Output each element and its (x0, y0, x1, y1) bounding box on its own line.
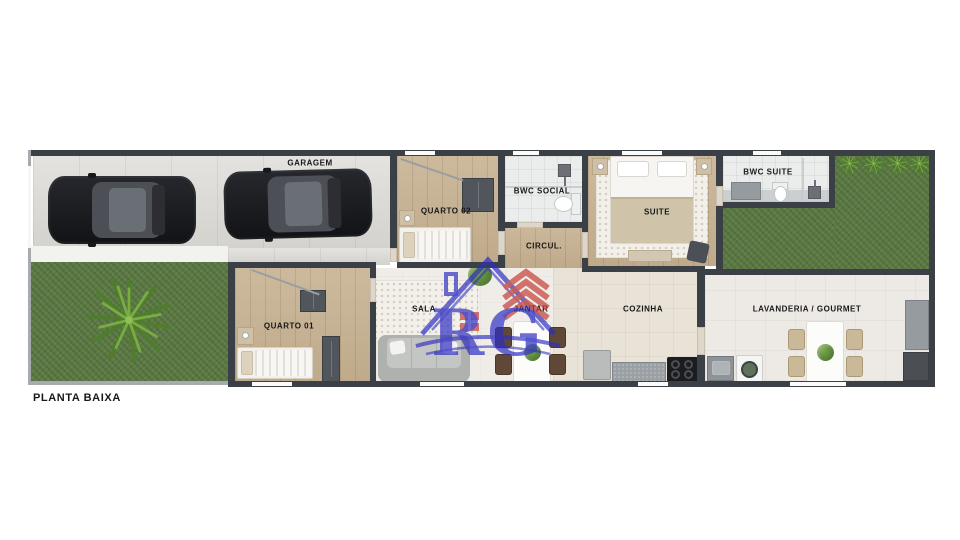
cabinet (903, 352, 929, 381)
nightstand (399, 210, 415, 226)
wall (697, 355, 705, 381)
wall (28, 150, 390, 156)
shower-arm (564, 177, 566, 186)
burner (671, 370, 680, 379)
mattress (255, 350, 311, 376)
car-windshield (152, 185, 165, 235)
wall (829, 156, 835, 202)
wall (390, 150, 935, 156)
lot-line (28, 381, 230, 385)
car-icon (48, 176, 196, 244)
shower-icon (558, 164, 571, 177)
window (638, 382, 668, 386)
wall (228, 262, 376, 268)
toilet-icon (554, 196, 573, 212)
pillow (389, 340, 406, 355)
car-mirror (88, 173, 96, 178)
pillow (617, 161, 649, 177)
lamp-icon (597, 163, 604, 170)
page-title: PLANTA BAIXA (33, 392, 121, 404)
wall (582, 266, 705, 272)
basin (712, 361, 730, 375)
laundry-sink (707, 356, 734, 381)
table-plant-icon (524, 344, 541, 361)
wall (370, 268, 376, 278)
wall (697, 272, 705, 327)
burner (684, 360, 693, 369)
stove-icon (667, 357, 698, 382)
pillow (441, 340, 458, 355)
wall (498, 156, 505, 231)
blanket (611, 197, 693, 243)
shower-arm (814, 180, 816, 187)
door-opening (390, 248, 397, 262)
wall (929, 156, 935, 387)
floor-plan-image: GARAGEM QUARTO 02 BWC SOCIAL CIRCUL. SUI… (0, 0, 960, 540)
wall (705, 269, 929, 275)
palm-tree-icon (83, 274, 175, 366)
nightstand (592, 158, 608, 175)
door-opening (517, 222, 543, 228)
window (420, 382, 464, 386)
room-label-bwc-social: BWC SOCIAL (514, 187, 571, 196)
room-label-lavanderia-gourmet: LAVANDERIA / GOURMET (753, 305, 862, 314)
washer-drum (741, 361, 758, 378)
wall (716, 206, 723, 272)
washing-machine-icon (736, 355, 763, 382)
wall (543, 222, 582, 228)
chair (788, 356, 805, 377)
pillow (241, 351, 253, 375)
room-label-bwc-suite: BWC SUITE (743, 168, 792, 177)
window (622, 151, 662, 155)
car-mirror (265, 237, 273, 242)
window (405, 151, 435, 155)
chair (846, 329, 863, 350)
wall (716, 150, 723, 186)
double-bed (610, 156, 694, 244)
door-opening (716, 186, 723, 206)
room-label-cozinha: COZINHA (623, 305, 663, 314)
driveway-opening (28, 166, 31, 248)
burner (684, 370, 693, 379)
lamp-icon (701, 163, 708, 170)
backyard-lawn (723, 208, 835, 272)
window (513, 151, 539, 155)
sink-counter (731, 182, 761, 200)
car-roof (109, 188, 146, 233)
mattress (417, 231, 469, 259)
toilet-icon (774, 186, 787, 202)
room-label-sala: SALA (412, 305, 436, 314)
room-label-suite: SUITE (644, 208, 670, 217)
nightstand (237, 327, 254, 345)
room-label-circul: CIRCUL. (526, 242, 562, 251)
chair (495, 354, 512, 375)
wall (390, 156, 397, 248)
shower-icon (808, 186, 821, 199)
car-windshield (327, 178, 342, 229)
room-label-garagem: GARAGEM (287, 159, 332, 168)
room-label-jantar: JANTAR (514, 305, 549, 314)
wall (582, 156, 588, 232)
walkway (31, 246, 228, 262)
window (753, 151, 781, 155)
car-mirror (88, 242, 96, 247)
counter (905, 300, 929, 350)
kitchen-counter (612, 362, 666, 382)
wardrobe (322, 336, 340, 382)
refrigerator (583, 350, 611, 380)
sofa (378, 335, 470, 382)
door-opening (498, 231, 505, 255)
shower-glass (802, 158, 804, 202)
car-roof (284, 181, 322, 227)
pillow (657, 161, 687, 177)
car-icon (223, 168, 373, 240)
wall (716, 202, 835, 208)
wall (498, 255, 505, 268)
door-opening (582, 232, 588, 258)
window (252, 382, 292, 386)
window (790, 382, 846, 386)
lamp-icon (404, 215, 411, 222)
pillow (403, 232, 415, 258)
room-label-quarto-01: QUARTO 01 (264, 322, 314, 331)
chair (549, 354, 566, 375)
wall (397, 262, 505, 268)
room-label-quarto-02: QUARTO 02 (421, 207, 471, 216)
door-opening (697, 327, 705, 355)
chair (549, 327, 566, 348)
single-bed (237, 347, 313, 379)
lamp-icon (242, 332, 249, 339)
burner (671, 360, 680, 369)
wall (505, 222, 517, 228)
table-plant-icon (817, 344, 834, 361)
nightstand (696, 158, 712, 175)
single-bed (399, 227, 471, 263)
wall (370, 302, 376, 381)
chair (495, 327, 512, 348)
chair (788, 329, 805, 350)
chair (846, 356, 863, 377)
door-opening (370, 278, 376, 302)
car-mirror (263, 168, 271, 173)
bed-bench (628, 250, 672, 262)
wall (228, 262, 235, 387)
desk-chair (686, 240, 710, 264)
